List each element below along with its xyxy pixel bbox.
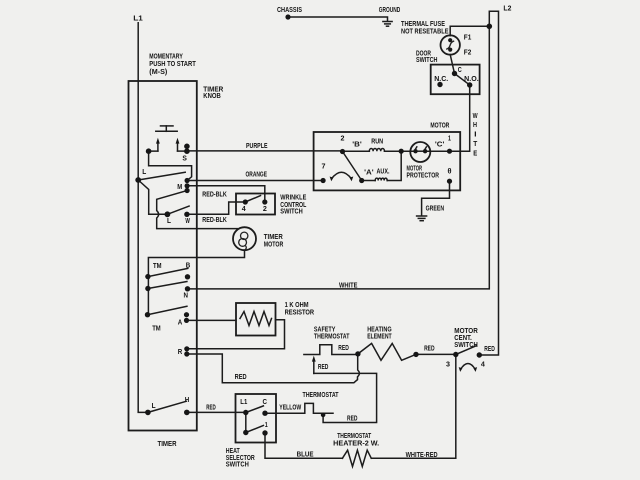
svg-text:T: T bbox=[473, 141, 478, 148]
svg-text:F1: F1 bbox=[464, 35, 472, 42]
svg-text:RED: RED bbox=[424, 345, 435, 352]
svg-text:TIMER: TIMER bbox=[158, 441, 177, 448]
svg-text:N: N bbox=[184, 292, 189, 299]
svg-text:ELEMENT: ELEMENT bbox=[367, 333, 392, 340]
svg-text:YELLOW: YELLOW bbox=[279, 404, 301, 411]
svg-text:2: 2 bbox=[341, 135, 345, 142]
svg-text:(M-S): (M-S) bbox=[149, 69, 167, 76]
svg-text:H: H bbox=[473, 122, 477, 129]
svg-text:RED: RED bbox=[484, 346, 495, 353]
svg-text:'A': 'A' bbox=[364, 169, 374, 176]
svg-text:WRINKLE: WRINKLE bbox=[280, 195, 306, 202]
svg-text:L: L bbox=[167, 218, 172, 225]
svg-text:1: 1 bbox=[448, 135, 451, 142]
svg-text:MOTOR: MOTOR bbox=[454, 328, 478, 335]
svg-text:THERMOSTAT: THERMOSTAT bbox=[314, 333, 350, 340]
svg-text:BLUE: BLUE bbox=[297, 451, 314, 458]
svg-text:RED-BLK: RED-BLK bbox=[202, 217, 227, 224]
svg-text:WHITE: WHITE bbox=[339, 282, 358, 289]
svg-text:THERMOSTAT: THERMOSTAT bbox=[337, 433, 372, 440]
svg-text:L: L bbox=[152, 403, 157, 410]
svg-text:'B': 'B' bbox=[352, 142, 362, 149]
svg-text:AUX.: AUX. bbox=[377, 169, 390, 176]
svg-text:4: 4 bbox=[242, 206, 246, 213]
svg-text:R: R bbox=[178, 349, 183, 356]
svg-text:'C': 'C' bbox=[435, 142, 445, 149]
svg-text:H: H bbox=[185, 397, 190, 404]
svg-text:M: M bbox=[177, 184, 182, 191]
svg-text:CENT.: CENT. bbox=[454, 335, 472, 342]
svg-text:RED: RED bbox=[206, 404, 216, 411]
svg-text:GROUND: GROUND bbox=[379, 7, 401, 14]
svg-text:GREEN: GREEN bbox=[426, 205, 445, 212]
svg-text:S: S bbox=[182, 155, 187, 162]
svg-text:L: L bbox=[142, 169, 147, 176]
svg-text:KNOB: KNOB bbox=[203, 93, 221, 100]
svg-text:1 K OHM: 1 K OHM bbox=[285, 302, 309, 309]
svg-text:N.O.: N.O. bbox=[464, 76, 479, 83]
svg-text:3: 3 bbox=[446, 361, 450, 368]
svg-text:RUN: RUN bbox=[371, 139, 383, 146]
svg-text:THERMAL FUSE: THERMAL FUSE bbox=[401, 21, 445, 28]
svg-text:TM: TM bbox=[152, 326, 161, 333]
svg-text:L2: L2 bbox=[503, 6, 511, 13]
svg-text:SWITCH: SWITCH bbox=[416, 57, 438, 64]
svg-text:F2: F2 bbox=[464, 50, 472, 57]
svg-text:L1: L1 bbox=[133, 15, 143, 22]
svg-text:TIMER: TIMER bbox=[264, 234, 283, 241]
svg-text:W: W bbox=[185, 218, 190, 225]
svg-text:MOTOR: MOTOR bbox=[407, 166, 423, 173]
svg-text:CHASSIS: CHASSIS bbox=[277, 7, 302, 14]
svg-text:1: 1 bbox=[265, 422, 268, 429]
svg-text:PROTECTOR: PROTECTOR bbox=[407, 173, 440, 180]
svg-text:E: E bbox=[473, 150, 477, 157]
svg-text:TM: TM bbox=[153, 263, 162, 270]
svg-text:A: A bbox=[178, 320, 183, 327]
svg-text:SWITCH: SWITCH bbox=[226, 461, 249, 468]
svg-text:THERMOSTAT: THERMOSTAT bbox=[303, 392, 340, 399]
svg-text:RED: RED bbox=[347, 415, 358, 422]
svg-text:I: I bbox=[474, 132, 477, 139]
svg-text:WHITE-RED: WHITE-RED bbox=[406, 452, 438, 459]
svg-text:SWITCH: SWITCH bbox=[280, 208, 303, 215]
svg-text:HEATER-2 W.: HEATER-2 W. bbox=[333, 440, 379, 447]
svg-text:RESISTOR: RESISTOR bbox=[285, 310, 315, 317]
svg-text:θ: θ bbox=[448, 169, 452, 176]
svg-text:NOT RESETABLE: NOT RESETABLE bbox=[401, 29, 449, 36]
svg-text:N.C.: N.C. bbox=[434, 76, 448, 83]
svg-text:MOMENTARY: MOMENTARY bbox=[149, 54, 183, 61]
svg-text:4: 4 bbox=[481, 361, 485, 368]
svg-text:W: W bbox=[473, 113, 478, 120]
svg-text:C: C bbox=[263, 399, 268, 406]
svg-text:RED: RED bbox=[338, 345, 349, 352]
svg-text:MOTOR: MOTOR bbox=[264, 241, 284, 248]
svg-text:RED: RED bbox=[235, 374, 247, 381]
svg-text:B: B bbox=[186, 262, 191, 269]
svg-text:PUSH TO START: PUSH TO START bbox=[149, 61, 196, 68]
svg-text:7: 7 bbox=[322, 164, 326, 171]
svg-text:PURPLE: PURPLE bbox=[246, 143, 268, 150]
svg-text:ORANGE: ORANGE bbox=[246, 171, 268, 178]
svg-text:SWITCH: SWITCH bbox=[454, 342, 478, 349]
svg-text:2: 2 bbox=[263, 206, 267, 213]
svg-text:L1: L1 bbox=[240, 399, 247, 406]
svg-text:RED-BLK: RED-BLK bbox=[202, 192, 227, 199]
svg-text:RED: RED bbox=[318, 364, 329, 371]
svg-text:MOTOR: MOTOR bbox=[430, 123, 449, 130]
svg-text:C: C bbox=[458, 67, 462, 74]
